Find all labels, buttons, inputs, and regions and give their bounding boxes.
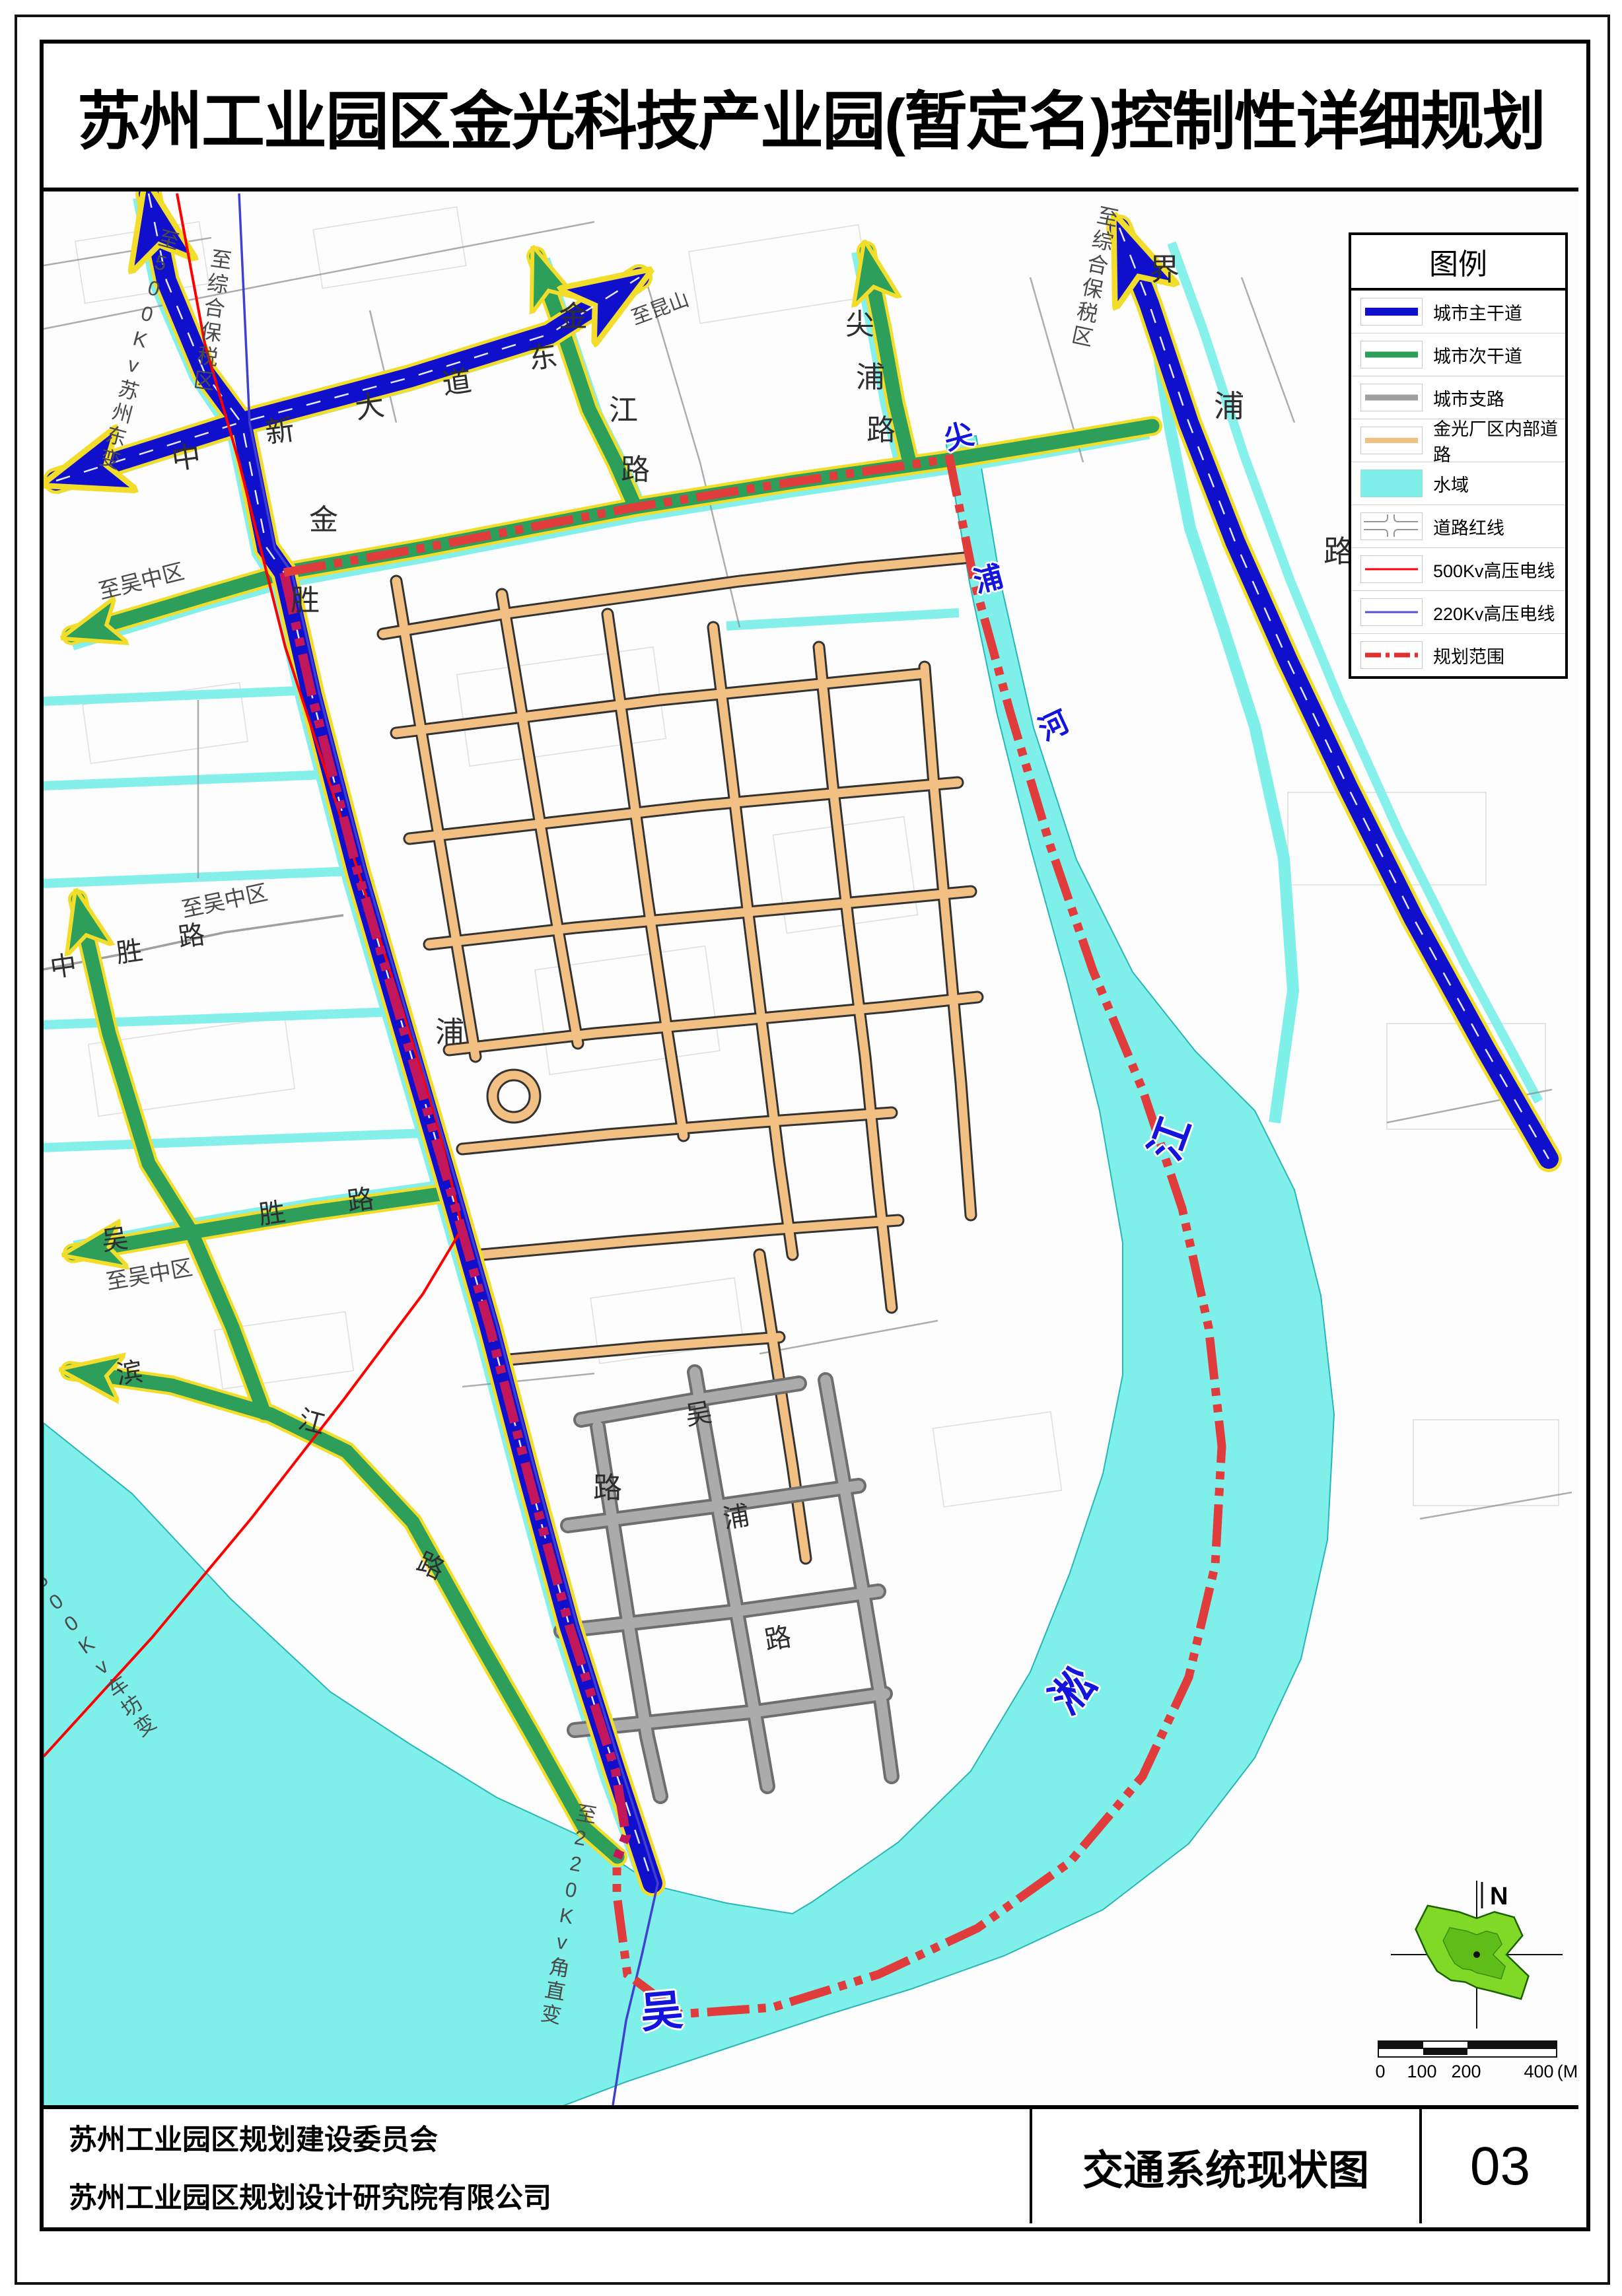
map-area: 中新大道东界浦路金江路尖浦路金胜浦路中胜路吴胜路滨江路吴浦路至综合保税区至综合保… (44, 191, 1578, 2105)
scale-tick-400: 400 (1524, 2062, 1553, 2082)
plan-boundary-swatch-icon (1360, 641, 1423, 669)
legend: 图例 城市主干道 城市次干道 城市支路 金光厂区内部道路 水域 (1349, 232, 1568, 679)
plan-sheet: 苏州工业园区金光科技产业园(暂定名)控制性详细规划 (0, 0, 1622, 2296)
scale-bar: 0 100 200 400 (M) (1378, 2040, 1576, 2088)
titleblock: 苏州工业园区规划建设委员会 苏州工业园区规划设计研究院有限公司 交通系统现状图 … (44, 2105, 1578, 2223)
scale-bar-blocks (1378, 2040, 1557, 2058)
wind-rose-icon (1391, 1881, 1563, 2029)
legend-item-plan-boundary: 规划范围 (1351, 634, 1565, 676)
sheet-number: 03 (1422, 2109, 1578, 2223)
scale-bar-labels: 0 100 200 400 (M) (1378, 2062, 1576, 2088)
water-swatch-icon (1360, 470, 1423, 497)
north-compass: N (1378, 1869, 1576, 2040)
org-line-1: 苏州工业园区规划建设委员会 (69, 2117, 1030, 2158)
scale-tick-0: 0 (1375, 2062, 1385, 2082)
legend-item-500kv: 500Kv高压电线 (1351, 548, 1565, 591)
branch-road-swatch-icon (1360, 384, 1423, 411)
scale-tick-200: 200 (1451, 2062, 1481, 2082)
legend-item-road-redline: 道路红线 (1351, 505, 1565, 548)
main-road-swatch-icon (1360, 298, 1423, 326)
legend-item-220kv: 220Kv高压电线 (1351, 591, 1565, 634)
scale-unit: (M) (1557, 2062, 1578, 2082)
power-220kv-swatch-icon (1360, 598, 1423, 626)
internal-road-swatch-icon (1360, 427, 1423, 454)
secondary-road-swatch-icon (1360, 341, 1423, 368)
main-roads (56, 193, 1549, 1883)
org-line-2: 苏州工业园区规划设计研究院有限公司 (69, 2175, 1030, 2216)
titleblock-organizations: 苏州工业园区规划建设委员会 苏州工业园区规划设计研究院有限公司 (44, 2109, 1032, 2223)
legend-item-branch-road: 城市支路 (1351, 376, 1565, 419)
legend-item-secondary-road: 城市次干道 (1351, 333, 1565, 376)
page-title: 苏州工业园区金光科技产业园(暂定名)控制性详细规划 (77, 70, 1545, 162)
legend-item-internal-road: 金光厂区内部道路 (1351, 419, 1565, 462)
scale-tick-100: 100 (1407, 2062, 1436, 2082)
legend-item-main-road: 城市主干道 (1351, 291, 1565, 333)
legend-title: 图例 (1351, 235, 1565, 291)
legend-item-water: 水域 (1351, 462, 1565, 505)
sheet-title: 交通系统现状图 (1032, 2109, 1422, 2223)
road-redline-swatch-icon (1360, 512, 1423, 540)
power-500kv-swatch-icon (1360, 555, 1423, 583)
north-label: N (1490, 1883, 1508, 1910)
title-row: 苏州工业园区金光科技产业园(暂定名)控制性详细规划 (44, 44, 1578, 191)
